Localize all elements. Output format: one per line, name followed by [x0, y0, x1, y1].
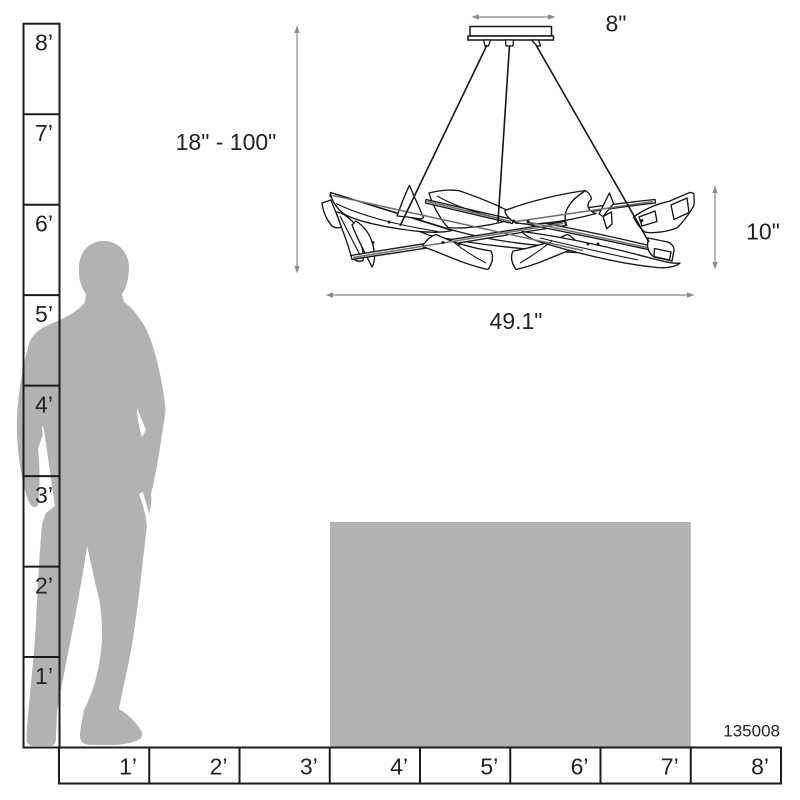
svg-text:6’: 6’	[35, 211, 53, 237]
svg-text:135008: 135008	[723, 722, 780, 741]
svg-text:1’: 1’	[119, 754, 137, 780]
svg-text:8’: 8’	[751, 754, 769, 780]
svg-text:3’: 3’	[300, 754, 318, 780]
svg-text:1’: 1’	[35, 663, 53, 689]
svg-text:3’: 3’	[35, 482, 53, 508]
svg-text:5’: 5’	[480, 754, 498, 780]
svg-text:5’: 5’	[35, 301, 53, 327]
svg-text:8’: 8’	[35, 30, 53, 56]
svg-text:2’: 2’	[210, 754, 228, 780]
svg-text:4’: 4’	[35, 392, 53, 418]
svg-text:49.1": 49.1"	[490, 308, 543, 334]
svg-text:10": 10"	[746, 219, 780, 245]
svg-text:7’: 7’	[661, 754, 679, 780]
svg-text:18" - 100": 18" - 100"	[176, 129, 277, 155]
svg-text:4’: 4’	[390, 754, 408, 780]
svg-text:6’: 6’	[571, 754, 589, 780]
svg-text:2’: 2’	[35, 573, 53, 599]
svg-text:7’: 7’	[35, 120, 53, 146]
svg-text:8": 8"	[606, 11, 627, 37]
